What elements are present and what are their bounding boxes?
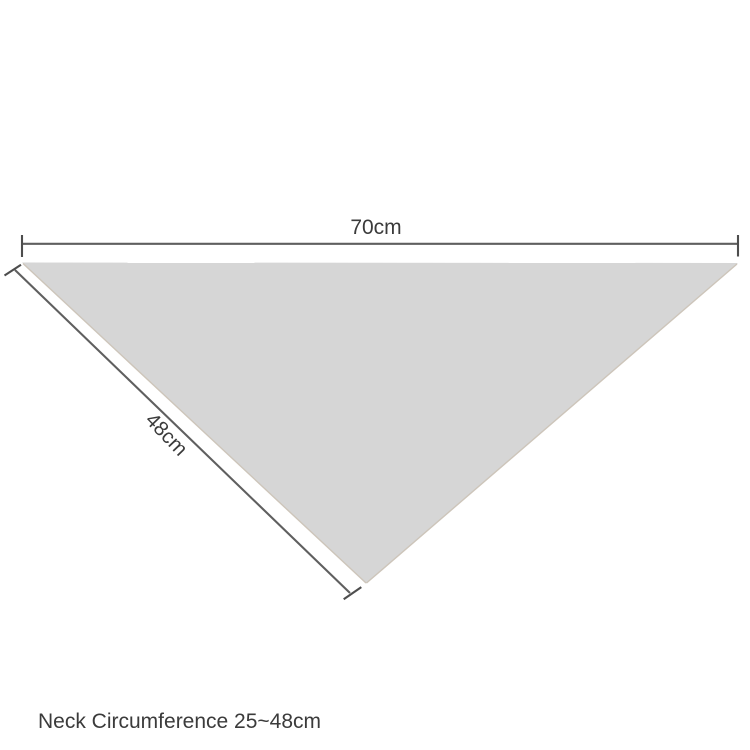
svg-text:Neck Circumference 25~48cm: Neck Circumference 25~48cm <box>38 710 321 733</box>
svg-text:70cm: 70cm <box>350 216 401 239</box>
